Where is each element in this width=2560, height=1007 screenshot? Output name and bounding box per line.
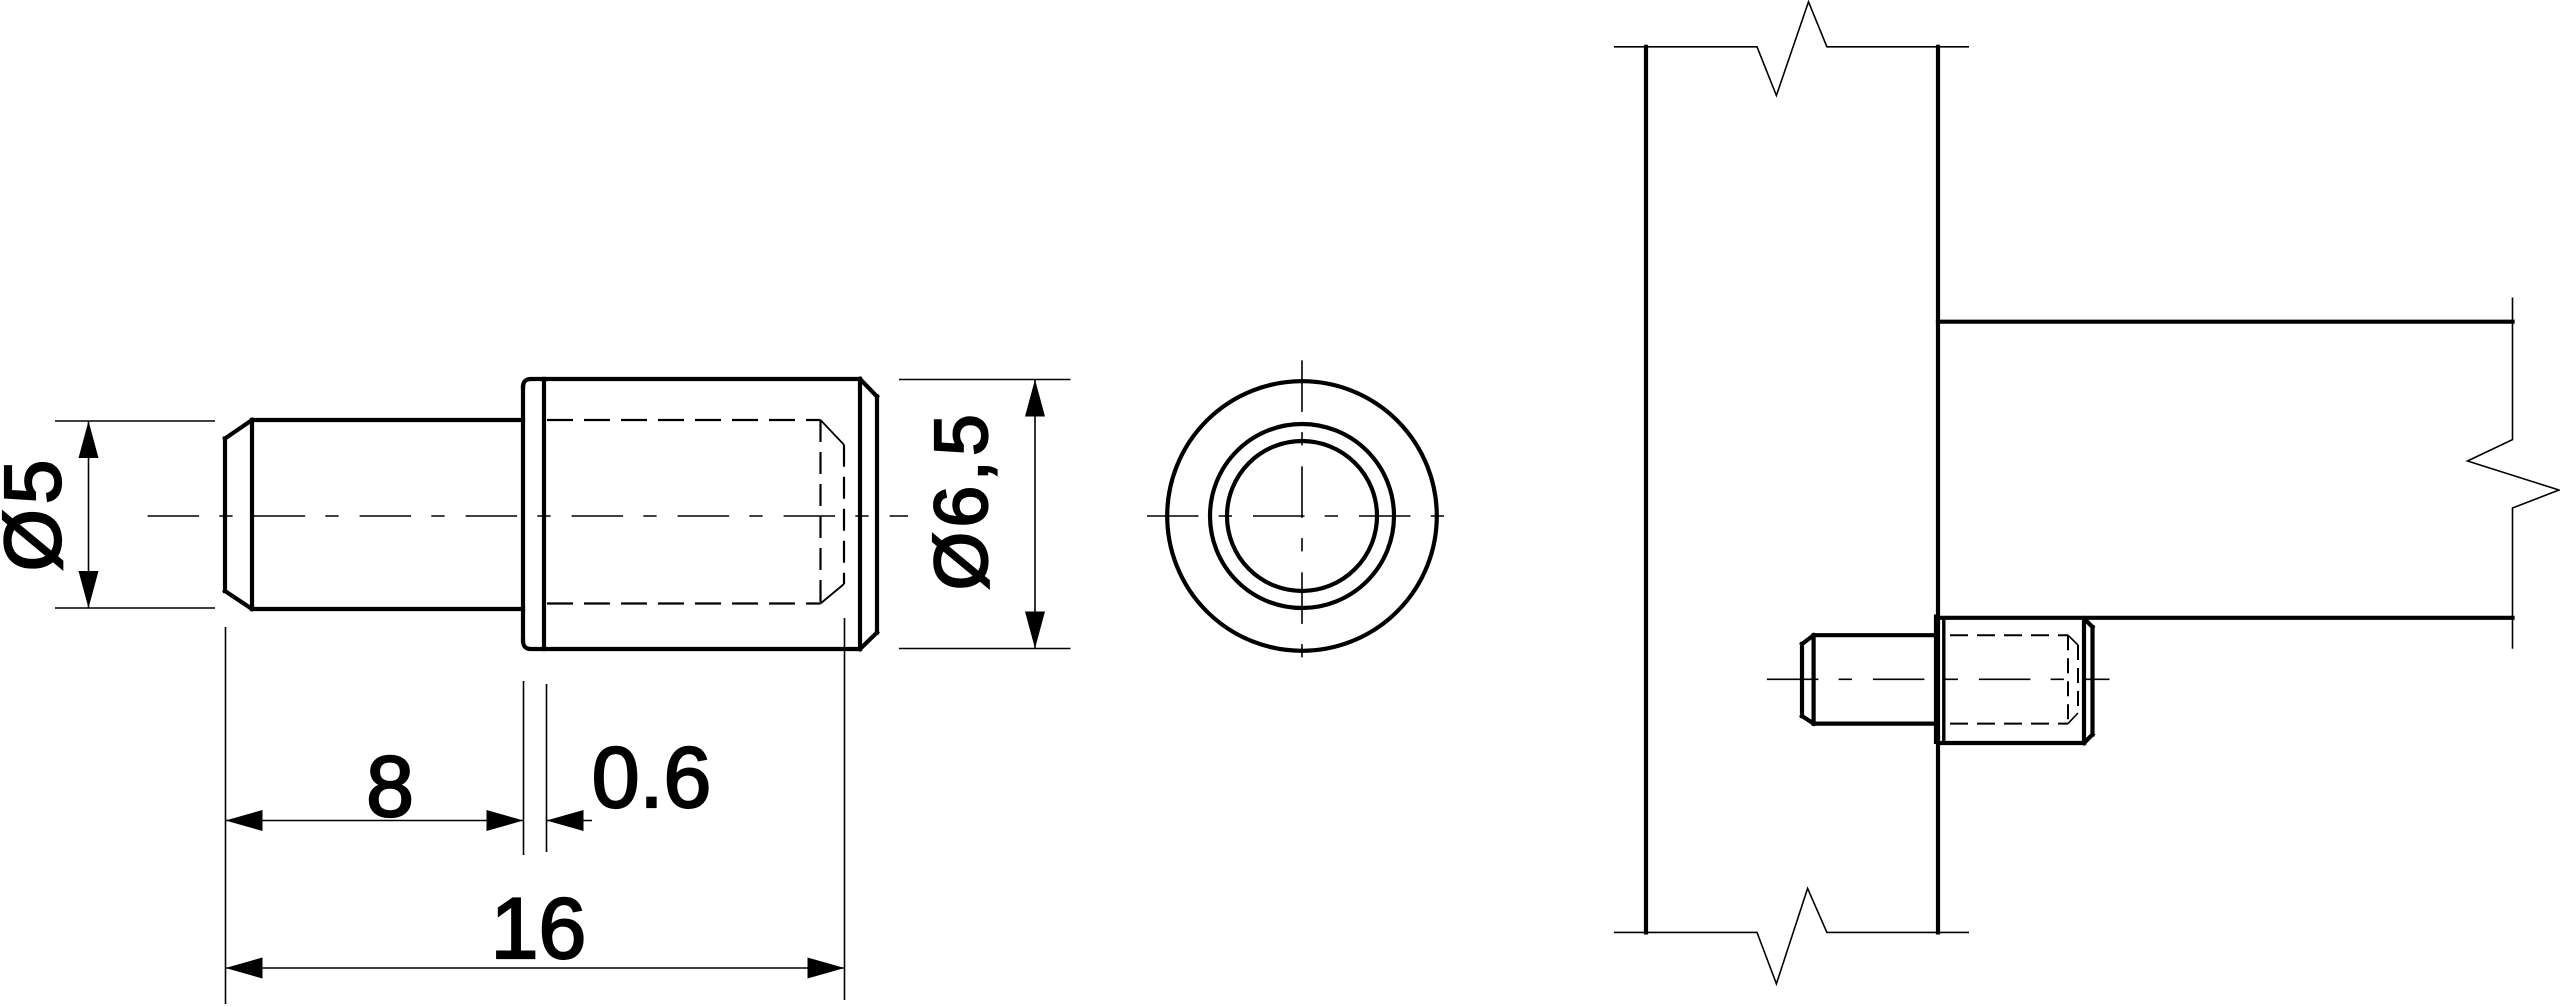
svg-text:0.6: 0.6 xyxy=(592,730,712,826)
svg-text:Ø5: Ø5 xyxy=(0,455,77,572)
svg-text:Ø6,5: Ø6,5 xyxy=(919,410,1003,591)
svg-text:16: 16 xyxy=(491,881,587,977)
svg-text:8: 8 xyxy=(366,739,414,835)
